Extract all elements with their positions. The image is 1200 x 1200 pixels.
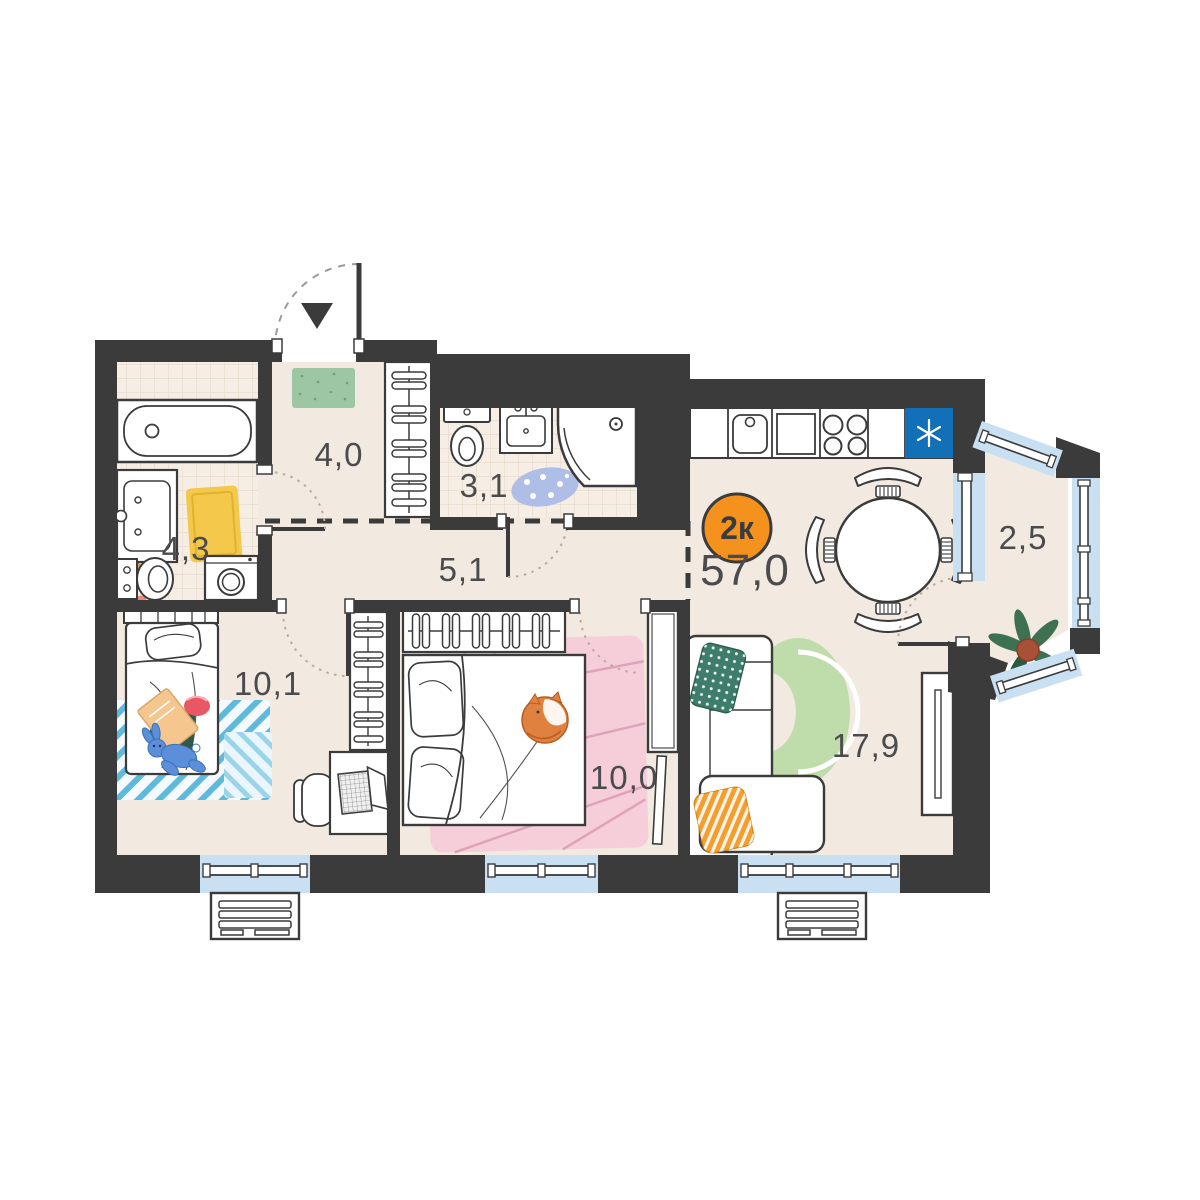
- toy-berry: [184, 696, 210, 716]
- dining-table: [836, 498, 940, 602]
- ac-unit-right: [778, 893, 866, 939]
- kitchen-sink: [733, 415, 767, 453]
- window-child-room: [200, 855, 310, 893]
- double-bed: [403, 655, 585, 825]
- kitchen-counter: [690, 408, 953, 458]
- entry-wardrobe: [385, 362, 433, 517]
- ac-unit-left: [211, 893, 299, 939]
- window-living-room: [738, 855, 900, 893]
- kitchen-worktop: [777, 414, 815, 454]
- clothes-rail: [403, 610, 565, 652]
- window-interior-kitchen-balcony: [953, 473, 985, 581]
- ac-units: [211, 893, 866, 939]
- window-bedroom: [485, 855, 598, 893]
- wc-sink: [500, 405, 552, 453]
- desk-chair: [294, 774, 334, 826]
- floor-plan: 2к 57,0 4,0 4,3 3,1 5,1 10,1 10,0 17,9 2…: [0, 0, 1200, 1200]
- entry-arrow-icon: [301, 303, 333, 329]
- room-label-bathroom: 4,3: [162, 530, 211, 567]
- room-label-balcony: 2,5: [999, 519, 1048, 556]
- fridge: [905, 408, 953, 458]
- total-area-label: 57,0: [700, 546, 790, 595]
- room-label-entry: 4,0: [315, 436, 364, 473]
- bathtub: [117, 400, 257, 462]
- child-wardrobe: [350, 612, 387, 750]
- washing-machine: [205, 556, 258, 600]
- single-bed: [124, 610, 218, 778]
- room-label-hallway: 5,1: [439, 551, 488, 588]
- room-label-bedroom-child: 10,1: [234, 665, 302, 702]
- doormat: [292, 368, 355, 408]
- laptop: [338, 765, 388, 814]
- entry-door: [275, 263, 359, 347]
- living-room-wardrobe: [922, 673, 953, 815]
- room-label-living: 17,9: [832, 727, 900, 764]
- room-label-wc: 3,1: [460, 467, 509, 504]
- room-label-bedroom: 10,0: [590, 759, 658, 796]
- floor-plan-canvas: 2к 57,0 4,0 4,3 3,1 5,1 10,1 10,0 17,9 2…: [0, 0, 1200, 1200]
- window-balcony-right: [1072, 478, 1100, 628]
- bedroom-wardrobe: [648, 610, 678, 752]
- apartment-type-badge-label: 2к: [720, 510, 755, 546]
